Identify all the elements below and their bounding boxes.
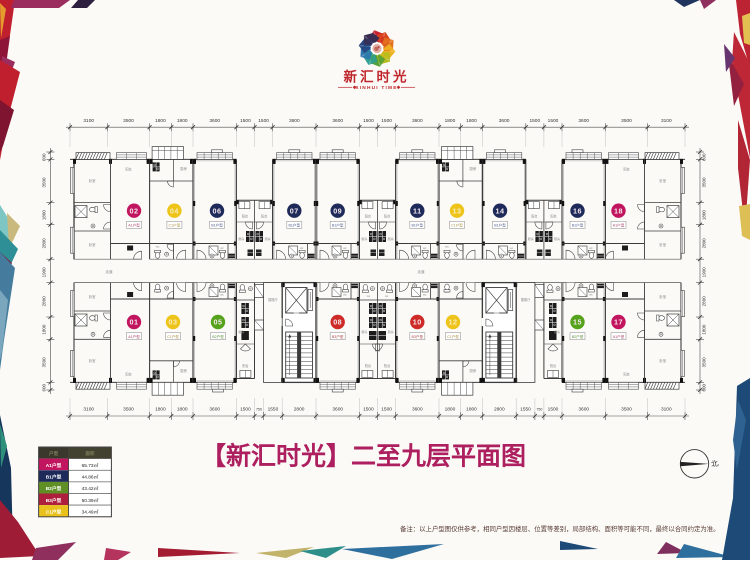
svg-text:10: 10	[413, 318, 422, 327]
svg-text:12: 12	[449, 318, 458, 327]
svg-text:厨房: 厨房	[180, 368, 187, 373]
svg-text:厨房: 厨房	[554, 236, 560, 241]
svg-text:阳台: 阳台	[550, 363, 556, 368]
svg-text:3500: 3500	[621, 407, 632, 413]
svg-text:走道: 走道	[417, 269, 425, 274]
svg-text:阳台: 阳台	[261, 214, 267, 219]
svg-text:1500: 1500	[363, 118, 374, 124]
svg-text:1500: 1500	[548, 407, 559, 413]
svg-text:B2户型: B2户型	[46, 485, 62, 492]
svg-text:B1户型: B1户型	[46, 474, 62, 481]
svg-text:1800: 1800	[177, 118, 188, 124]
svg-text:1500: 1500	[381, 118, 392, 124]
svg-text:B1户型: B1户型	[494, 223, 506, 228]
svg-text:卧室: 卧室	[659, 294, 666, 299]
svg-text:1800: 1800	[702, 210, 707, 221]
svg-text:3100: 3100	[83, 407, 94, 413]
svg-text:【新汇时光】二至九层平面图: 【新汇时光】二至九层平面图	[201, 442, 526, 471]
svg-text:2800: 2800	[702, 296, 707, 307]
svg-text:1500: 1500	[258, 118, 269, 124]
svg-text:16: 16	[573, 206, 582, 215]
svg-text:3100: 3100	[661, 407, 672, 413]
svg-text:1800: 1800	[42, 324, 47, 335]
svg-text:厨房: 厨房	[554, 329, 560, 334]
svg-text:卧室: 卧室	[89, 358, 96, 363]
svg-text:3600: 3600	[209, 118, 220, 124]
svg-text:43.42㎡: 43.42㎡	[82, 485, 99, 492]
svg-text:新汇时光: 新汇时光	[344, 69, 410, 85]
svg-text:600: 600	[42, 383, 47, 391]
svg-text:3600: 3600	[578, 407, 589, 413]
svg-text:wc: wc	[156, 245, 160, 249]
svg-text:A1户型: A1户型	[613, 334, 625, 339]
svg-text:wc: wc	[589, 293, 593, 297]
svg-text:3600: 3600	[332, 407, 343, 413]
svg-text:04: 04	[170, 206, 179, 215]
svg-text:2800: 2800	[294, 407, 305, 413]
svg-text:阳台: 阳台	[384, 363, 390, 368]
svg-text:1550: 1550	[520, 407, 531, 413]
svg-text:3500: 3500	[702, 177, 707, 188]
svg-text:1800: 1800	[155, 118, 166, 124]
svg-text:B1户型: B1户型	[289, 223, 301, 228]
svg-text:1500: 1500	[363, 407, 374, 413]
svg-text:备注：以上户型图仅供参考，相同户型因楼层、位置等差别，局部结: 备注：以上户型图仅供参考，相同户型因楼层、位置等差别，局部结构、面积等可能不同，…	[400, 524, 720, 533]
svg-text:厨房: 厨房	[238, 329, 244, 334]
svg-text:阳台: 阳台	[550, 214, 556, 219]
svg-text:A1户型: A1户型	[46, 462, 62, 469]
svg-text:44.86㎡: 44.86㎡	[82, 474, 99, 481]
svg-text:1550: 1550	[268, 407, 279, 413]
svg-text:阳台: 阳台	[125, 166, 131, 171]
svg-text:1500: 1500	[529, 118, 540, 124]
svg-text:3500: 3500	[123, 407, 134, 413]
svg-text:1800: 1800	[177, 407, 188, 413]
svg-text:01: 01	[130, 318, 139, 327]
svg-text:3500: 3500	[42, 177, 47, 188]
svg-text:阳台: 阳台	[384, 214, 390, 219]
svg-text:600: 600	[702, 153, 707, 161]
svg-text:B1户型: B1户型	[211, 223, 223, 228]
svg-text:厨房: 厨房	[265, 236, 271, 241]
svg-text:厨房: 厨房	[388, 329, 394, 334]
svg-text:wc: wc	[423, 293, 427, 297]
svg-text:3500: 3500	[621, 118, 632, 124]
svg-text:卧室: 卧室	[659, 358, 666, 363]
svg-text:wc: wc	[343, 246, 347, 250]
svg-text:11: 11	[413, 206, 422, 215]
svg-text:1800: 1800	[466, 407, 477, 413]
svg-text:1800: 1800	[42, 210, 47, 221]
svg-text:3600: 3600	[412, 118, 423, 124]
svg-text:C1户型: C1户型	[451, 223, 463, 228]
svg-text:厨房: 厨房	[238, 236, 244, 241]
svg-text:50.39㎡: 50.39㎡	[82, 497, 99, 504]
svg-text:600: 600	[702, 383, 707, 391]
svg-text:阳台: 阳台	[623, 371, 629, 376]
svg-text:3500: 3500	[42, 357, 47, 368]
svg-text:14: 14	[496, 206, 505, 215]
svg-text:08: 08	[333, 318, 342, 327]
svg-text:13: 13	[453, 206, 462, 215]
svg-text:03: 03	[169, 318, 178, 327]
svg-text:750: 750	[536, 408, 542, 412]
svg-text:wc: wc	[589, 246, 593, 250]
svg-text:3600: 3600	[499, 118, 510, 124]
svg-text:wc: wc	[445, 245, 449, 249]
svg-text:3600: 3600	[209, 407, 220, 413]
svg-text:02: 02	[130, 206, 139, 215]
svg-text:wc: wc	[300, 246, 304, 250]
svg-text:厨房: 厨房	[361, 329, 367, 334]
svg-text:走道: 走道	[105, 269, 113, 274]
svg-text:1800: 1800	[445, 407, 456, 413]
svg-text:3500: 3500	[702, 357, 707, 368]
svg-text:3600: 3600	[578, 118, 589, 124]
svg-text:厨房: 厨房	[528, 236, 534, 241]
svg-text:750: 750	[256, 408, 262, 412]
svg-text:2800: 2800	[494, 407, 505, 413]
svg-text:wc: wc	[343, 293, 347, 297]
svg-text:1800: 1800	[445, 118, 456, 124]
svg-text:卧室: 卧室	[659, 178, 666, 183]
svg-text:阳台: 阳台	[365, 214, 371, 219]
svg-text:3600: 3600	[332, 118, 343, 124]
svg-text:600: 600	[42, 153, 47, 161]
svg-text:3600: 3600	[412, 407, 423, 413]
svg-text:C1户型: C1户型	[447, 334, 459, 339]
svg-text:1900: 1900	[702, 267, 707, 278]
svg-text:wc: wc	[510, 246, 514, 250]
svg-text:厨房: 厨房	[470, 166, 477, 171]
svg-text:B1户型: B1户型	[572, 223, 584, 228]
svg-text:3500: 3500	[123, 118, 134, 124]
svg-text:07: 07	[290, 206, 299, 215]
svg-text:05: 05	[214, 318, 223, 327]
svg-text:面积: 面积	[85, 450, 95, 457]
svg-text:阳台: 阳台	[623, 166, 629, 171]
svg-text:阳台: 阳台	[242, 214, 248, 219]
svg-text:卧室: 卧室	[89, 294, 96, 299]
svg-text:2800: 2800	[42, 238, 47, 249]
svg-text:15: 15	[573, 318, 582, 327]
svg-text:1500: 1500	[381, 407, 392, 413]
svg-text:2800: 2800	[702, 238, 707, 249]
svg-text:B3户型: B3户型	[412, 334, 424, 339]
svg-text:wc: wc	[367, 294, 371, 298]
svg-text:XINHUI TIME: XINHUI TIME	[355, 85, 397, 91]
svg-text:阳台: 阳台	[365, 363, 371, 368]
svg-text:阳台: 阳台	[125, 371, 131, 376]
svg-text:B3户型: B3户型	[332, 334, 344, 339]
svg-text:65.73㎡: 65.73㎡	[82, 462, 99, 469]
svg-text:厨房: 厨房	[470, 368, 477, 373]
svg-text:B1户型: B1户型	[412, 223, 424, 228]
svg-text:1900: 1900	[42, 267, 47, 278]
svg-text:wc: wc	[220, 246, 224, 250]
svg-text:1800: 1800	[155, 407, 166, 413]
svg-text:1500: 1500	[548, 118, 559, 124]
svg-text:A1户型: A1户型	[613, 223, 625, 228]
svg-text:楼梯厅: 楼梯厅	[521, 297, 531, 302]
svg-text:厨房: 厨房	[361, 236, 367, 241]
svg-text:卧室: 卧室	[659, 242, 666, 247]
svg-text:1500: 1500	[240, 118, 251, 124]
svg-text:楼梯厅: 楼梯厅	[268, 297, 278, 302]
svg-text:1800: 1800	[466, 118, 477, 124]
svg-text:17: 17	[614, 318, 623, 327]
svg-text:3600: 3600	[289, 118, 300, 124]
svg-text:2800: 2800	[42, 296, 47, 307]
svg-text:厨房: 厨房	[180, 166, 187, 171]
svg-text:09: 09	[333, 206, 342, 215]
svg-text:06: 06	[213, 206, 222, 215]
svg-text:C1户型: C1户型	[46, 508, 62, 515]
svg-text:A1户型: A1户型	[128, 223, 140, 228]
svg-text:C1户型: C1户型	[167, 334, 179, 339]
svg-text:户型: 户型	[48, 450, 59, 457]
svg-text:1500: 1500	[240, 407, 251, 413]
svg-text:C1户型: C1户型	[169, 223, 181, 228]
svg-text:18: 18	[614, 206, 623, 215]
svg-text:wc: wc	[385, 294, 389, 298]
svg-text:B1户型: B1户型	[332, 223, 344, 228]
svg-text:阳台: 阳台	[531, 214, 537, 219]
svg-text:阳台: 阳台	[242, 363, 248, 368]
svg-text:卧室: 卧室	[89, 178, 96, 183]
svg-text:B2户型: B2户型	[212, 334, 224, 339]
svg-text:3100: 3100	[661, 118, 672, 124]
svg-text:B3户型: B3户型	[46, 497, 62, 504]
svg-text:wc: wc	[423, 246, 427, 250]
svg-text:1800: 1800	[702, 324, 707, 335]
svg-text:B2户型: B2户型	[572, 334, 584, 339]
svg-text:wc: wc	[220, 293, 224, 297]
svg-text:34.49㎡: 34.49㎡	[82, 508, 99, 515]
svg-text:3100: 3100	[83, 118, 94, 124]
svg-text:A1户型: A1户型	[128, 334, 140, 339]
svg-text:卧室: 卧室	[89, 242, 96, 247]
svg-text:厨房: 厨房	[388, 236, 394, 241]
